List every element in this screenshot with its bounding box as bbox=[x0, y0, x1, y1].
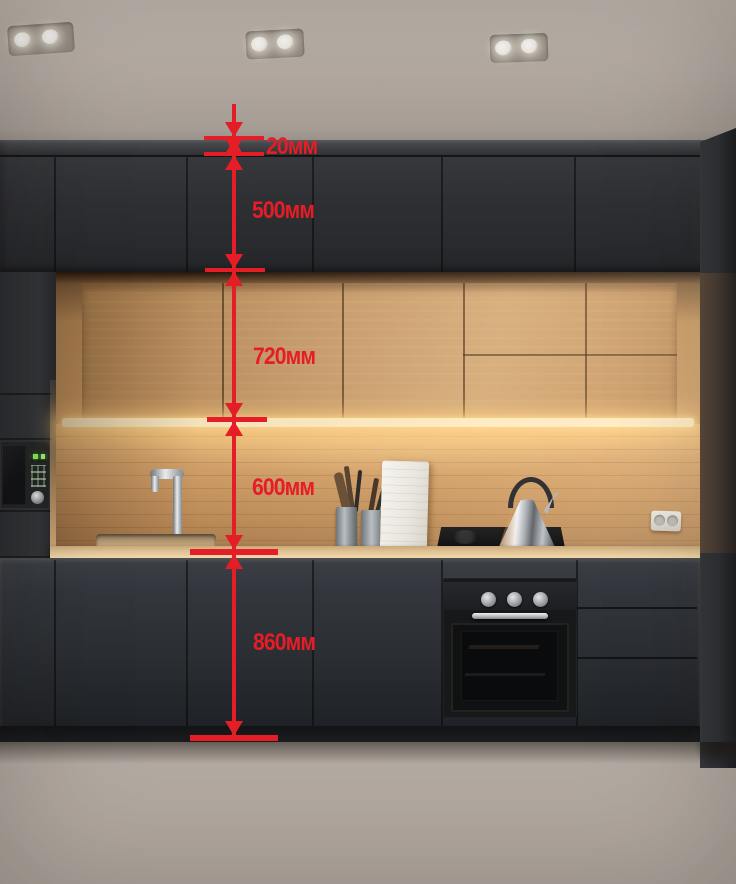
microwave-knob bbox=[31, 491, 44, 504]
oven-knob bbox=[507, 592, 522, 607]
burner bbox=[452, 530, 478, 544]
cabinet-seam bbox=[441, 157, 443, 272]
ceiling-light-fixture bbox=[7, 22, 75, 57]
oven-control-panel bbox=[443, 582, 577, 610]
cabinet-seam bbox=[186, 157, 188, 272]
arrow-up-icon bbox=[225, 554, 243, 569]
ceiling-filler-strip bbox=[0, 140, 736, 157]
cabinet-seam bbox=[574, 157, 576, 272]
dimension-label-600mm: 600мм bbox=[252, 474, 314, 502]
dimension-label-20mm: 20мм bbox=[266, 133, 317, 161]
arrow-up-icon bbox=[225, 271, 243, 286]
oven-knob bbox=[481, 592, 496, 607]
arrow-down-icon bbox=[225, 403, 243, 418]
faucet-riser bbox=[173, 476, 182, 540]
arrow-down-icon bbox=[225, 138, 243, 153]
drawer-seam bbox=[577, 607, 697, 609]
ceiling-light-fixture bbox=[245, 29, 304, 60]
dimension-label-720mm: 720мм bbox=[253, 343, 315, 371]
upper-dark-cabinets bbox=[0, 140, 736, 273]
arrow-down-icon bbox=[225, 535, 243, 550]
microwave-door bbox=[2, 445, 26, 505]
cabinet-seam bbox=[0, 510, 52, 512]
cutting-board bbox=[380, 460, 429, 549]
column-reflection bbox=[700, 273, 736, 553]
oven-knob bbox=[533, 592, 548, 607]
faucet-spout bbox=[151, 476, 159, 492]
ceiling-light-fixture bbox=[490, 33, 549, 63]
dimension-label-860mm: 860мм bbox=[253, 629, 315, 657]
cabinet-seam bbox=[54, 560, 56, 726]
drawer-seam bbox=[577, 657, 697, 659]
spotlight-bulb-icon bbox=[14, 32, 32, 48]
spotlight-bulb-icon bbox=[495, 40, 513, 56]
dimension-label-500mm: 500мм bbox=[252, 197, 314, 225]
spotlight-bulb-icon bbox=[277, 34, 295, 50]
spotlight-bulb-icon bbox=[251, 36, 269, 52]
cabinet-seam bbox=[186, 560, 188, 726]
arrow-up-icon bbox=[225, 421, 243, 436]
wood-floor bbox=[0, 742, 736, 884]
spotlight-bulb-icon bbox=[41, 29, 59, 45]
arrow-down-icon bbox=[225, 254, 243, 269]
oven-door bbox=[451, 623, 569, 712]
cabinet-seam bbox=[0, 438, 52, 440]
kitchen-photo: 20мм 500мм 720мм 600мм 860мм bbox=[0, 0, 736, 884]
toe-kick bbox=[0, 726, 700, 742]
built-in-oven bbox=[443, 578, 577, 718]
cabinet-seam bbox=[0, 393, 52, 395]
utensil-cup bbox=[336, 507, 357, 549]
power-outlet bbox=[651, 510, 682, 531]
arrow-down-icon bbox=[225, 122, 243, 137]
right-corner-column bbox=[700, 128, 736, 768]
oven-window bbox=[461, 631, 558, 701]
spotlight-bulb-icon bbox=[521, 38, 539, 54]
ceiling bbox=[0, 0, 736, 141]
built-in-microwave bbox=[0, 441, 50, 509]
countertop bbox=[50, 546, 700, 558]
column-cast-shadow bbox=[688, 742, 736, 778]
cabinet-cast-shadow bbox=[0, 742, 736, 764]
arrow-down-icon bbox=[225, 721, 243, 736]
arrow-up-icon bbox=[225, 155, 243, 170]
base-cabinets bbox=[0, 558, 700, 742]
microwave-display bbox=[31, 452, 46, 462]
cabinet-seam bbox=[54, 157, 56, 272]
microwave-buttons bbox=[31, 465, 46, 487]
oven-handle bbox=[472, 613, 548, 619]
